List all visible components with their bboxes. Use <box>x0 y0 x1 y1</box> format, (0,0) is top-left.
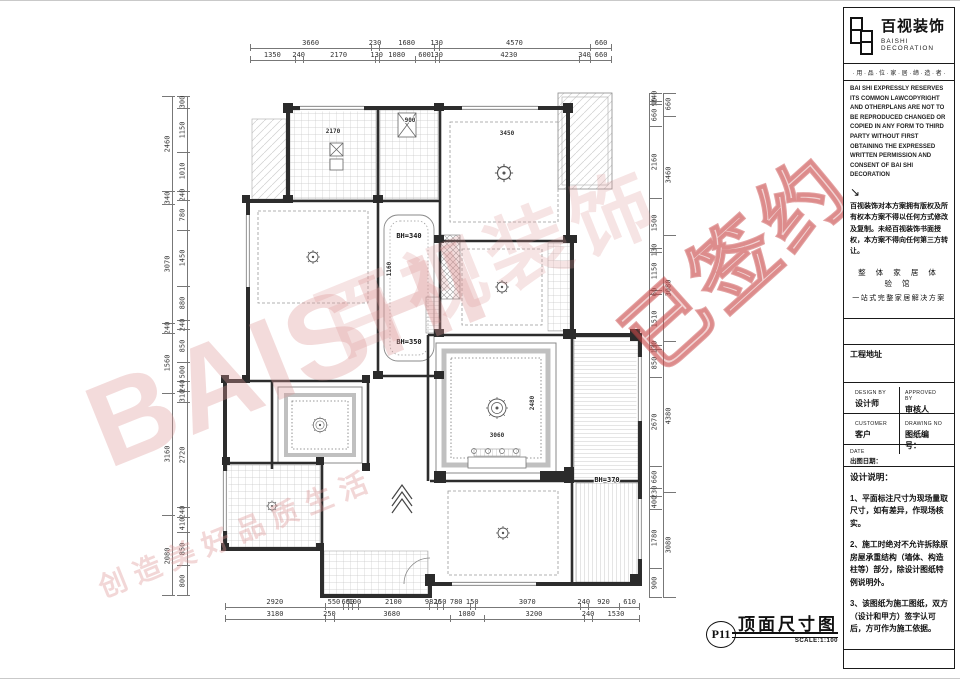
room-dim-label: 2170 <box>326 128 341 135</box>
copyright-text-cn: 百视装饰对本方案拥有版权及所有权本方案不得以任何方式修改及复制。未经百视装饰书面… <box>850 201 948 258</box>
dim-chain-left-outer: 24603403070240156031602080 <box>163 96 173 596</box>
ceiling-height-label: BH=350 <box>396 338 421 346</box>
lamp-symbol <box>496 526 510 540</box>
project-address-cell: 工程地址 <box>844 345 954 383</box>
ac-platform <box>252 119 286 199</box>
room-dim-label: 3060 <box>490 432 505 439</box>
drawing-title-block: P11 顶面尺寸图 SCALE:1:100 <box>690 609 842 657</box>
entry-direction-arrow <box>392 485 412 513</box>
dim-chain-bottom-inner: 2920550605010021009826150780150307024092… <box>225 598 640 608</box>
lamp-symbol <box>306 250 320 264</box>
floor-plan: BH=340 BH=350 BH=370 2170 3450 900 3060 … <box>0 1 840 680</box>
room-dim-label: 3450 <box>500 130 515 137</box>
slogan-line-1: 整 体 家 居 体 验 馆 <box>850 267 948 289</box>
company-name-en: BAISHI DECORATION <box>881 38 948 52</box>
title-block-column: 百视装饰 BAISHI DECORATION · 用 · 品 · 位 · 家 ·… <box>843 7 955 669</box>
approver-label-en: APPROVED BY <box>905 390 943 402</box>
room-dim-label: 2480 <box>529 395 536 410</box>
company-name: 百视装饰 <box>881 19 948 36</box>
date-label-en: DATE <box>850 449 948 455</box>
copyright-section: BAI SHI EXPRESSLY RESERVES ITS COMMON LA… <box>844 81 954 319</box>
room-dim-label: 1160 <box>386 261 393 276</box>
ceiling-height-label: BH=370 <box>594 476 619 484</box>
company-tagline: · 用 · 品 · 位 · 家 · 居 · 缔 · 造 · 者 · <box>844 64 954 81</box>
date-label-cn: 出图日期： <box>850 456 948 465</box>
dim-chain-right-inner: 2409066021601500130115060151013085026706… <box>649 93 659 598</box>
blank-cell <box>844 319 954 345</box>
lamp-symbol <box>495 280 509 294</box>
ceiling-height-label: BH=340 <box>396 232 421 240</box>
slogan-line-2: 一站式完整家居解决方案 <box>850 293 948 303</box>
balcony-right-planks <box>574 337 638 482</box>
drawing-no-label-en: DRAWING NO <box>905 421 943 427</box>
designer-approver-row: DESIGN BY 设计师 APPROVED BY 审核人 <box>844 383 954 414</box>
dining-coffered-ceiling <box>278 387 362 463</box>
customer-label-cn: 客户 <box>855 429 894 440</box>
dim-chain-top-outer: 366023016801304570660 <box>250 39 612 49</box>
design-note: 1、平面标注尺寸为现场量取尺寸，如有差异，作现场核实。 <box>850 493 948 530</box>
arrow-icon: ↘ <box>850 186 948 198</box>
wardrobe-hatch <box>440 235 460 299</box>
dim-chain-right-outer: 6603460308043803080 <box>663 93 673 598</box>
dim-chain-left-inner: 3001150101024078014508802408505002403102… <box>178 96 188 596</box>
drawing-sheet: BH=340 BH=350 BH=370 2170 3450 900 3060 … <box>0 0 960 679</box>
date-cell: DATE 出图日期： <box>844 445 954 467</box>
company-logo-section: 百视装饰 BAISHI DECORATION <box>844 8 954 64</box>
room-dim-label: 900 <box>405 117 416 124</box>
entry-porch-grid <box>324 551 428 594</box>
designer-label-cn: 设计师 <box>855 398 894 409</box>
balcony-bottom-planks <box>576 483 638 582</box>
living-coffered-ceiling <box>436 343 556 473</box>
drawing-scale: SCALE:1:100 <box>732 638 838 644</box>
company-logo-icon <box>850 17 876 55</box>
customer-label-en: CUSTOMER <box>855 421 894 427</box>
design-notes-title: 设计说明： <box>850 471 948 483</box>
design-note: 2、施工时绝对不允许拆除原房屋承重结构（墙体、构造柱等）部分，除设计图纸特例说明… <box>850 539 948 589</box>
design-notes-section: 设计说明： 1、平面标注尺寸为现场量取尺寸，如有差异，作现场核实。 2、施工时绝… <box>844 467 954 650</box>
dim-chain-top-inner: 1350240217013010806001304230340660 <box>250 51 612 61</box>
design-note: 3、该图纸为施工图纸，双方（设计和甲方）签字认可后，方可作为施工依据。 <box>850 598 948 635</box>
bath-bottom-grid <box>227 465 320 547</box>
customer-drawingno-row: CUSTOMER 客户 DRAWING NO 图纸编号： <box>844 414 954 445</box>
designer-label-en: DESIGN BY <box>855 390 894 396</box>
dim-chain-bottom-outer: 31802503680108032002401530 <box>225 610 640 620</box>
ceiling-fan-symbol <box>495 164 513 182</box>
bath-right-grid <box>548 243 570 331</box>
lamp-symbol <box>266 500 277 511</box>
copyright-text-en: BAI SHI EXPRESSLY RESERVES ITS COMMON LA… <box>850 85 948 181</box>
